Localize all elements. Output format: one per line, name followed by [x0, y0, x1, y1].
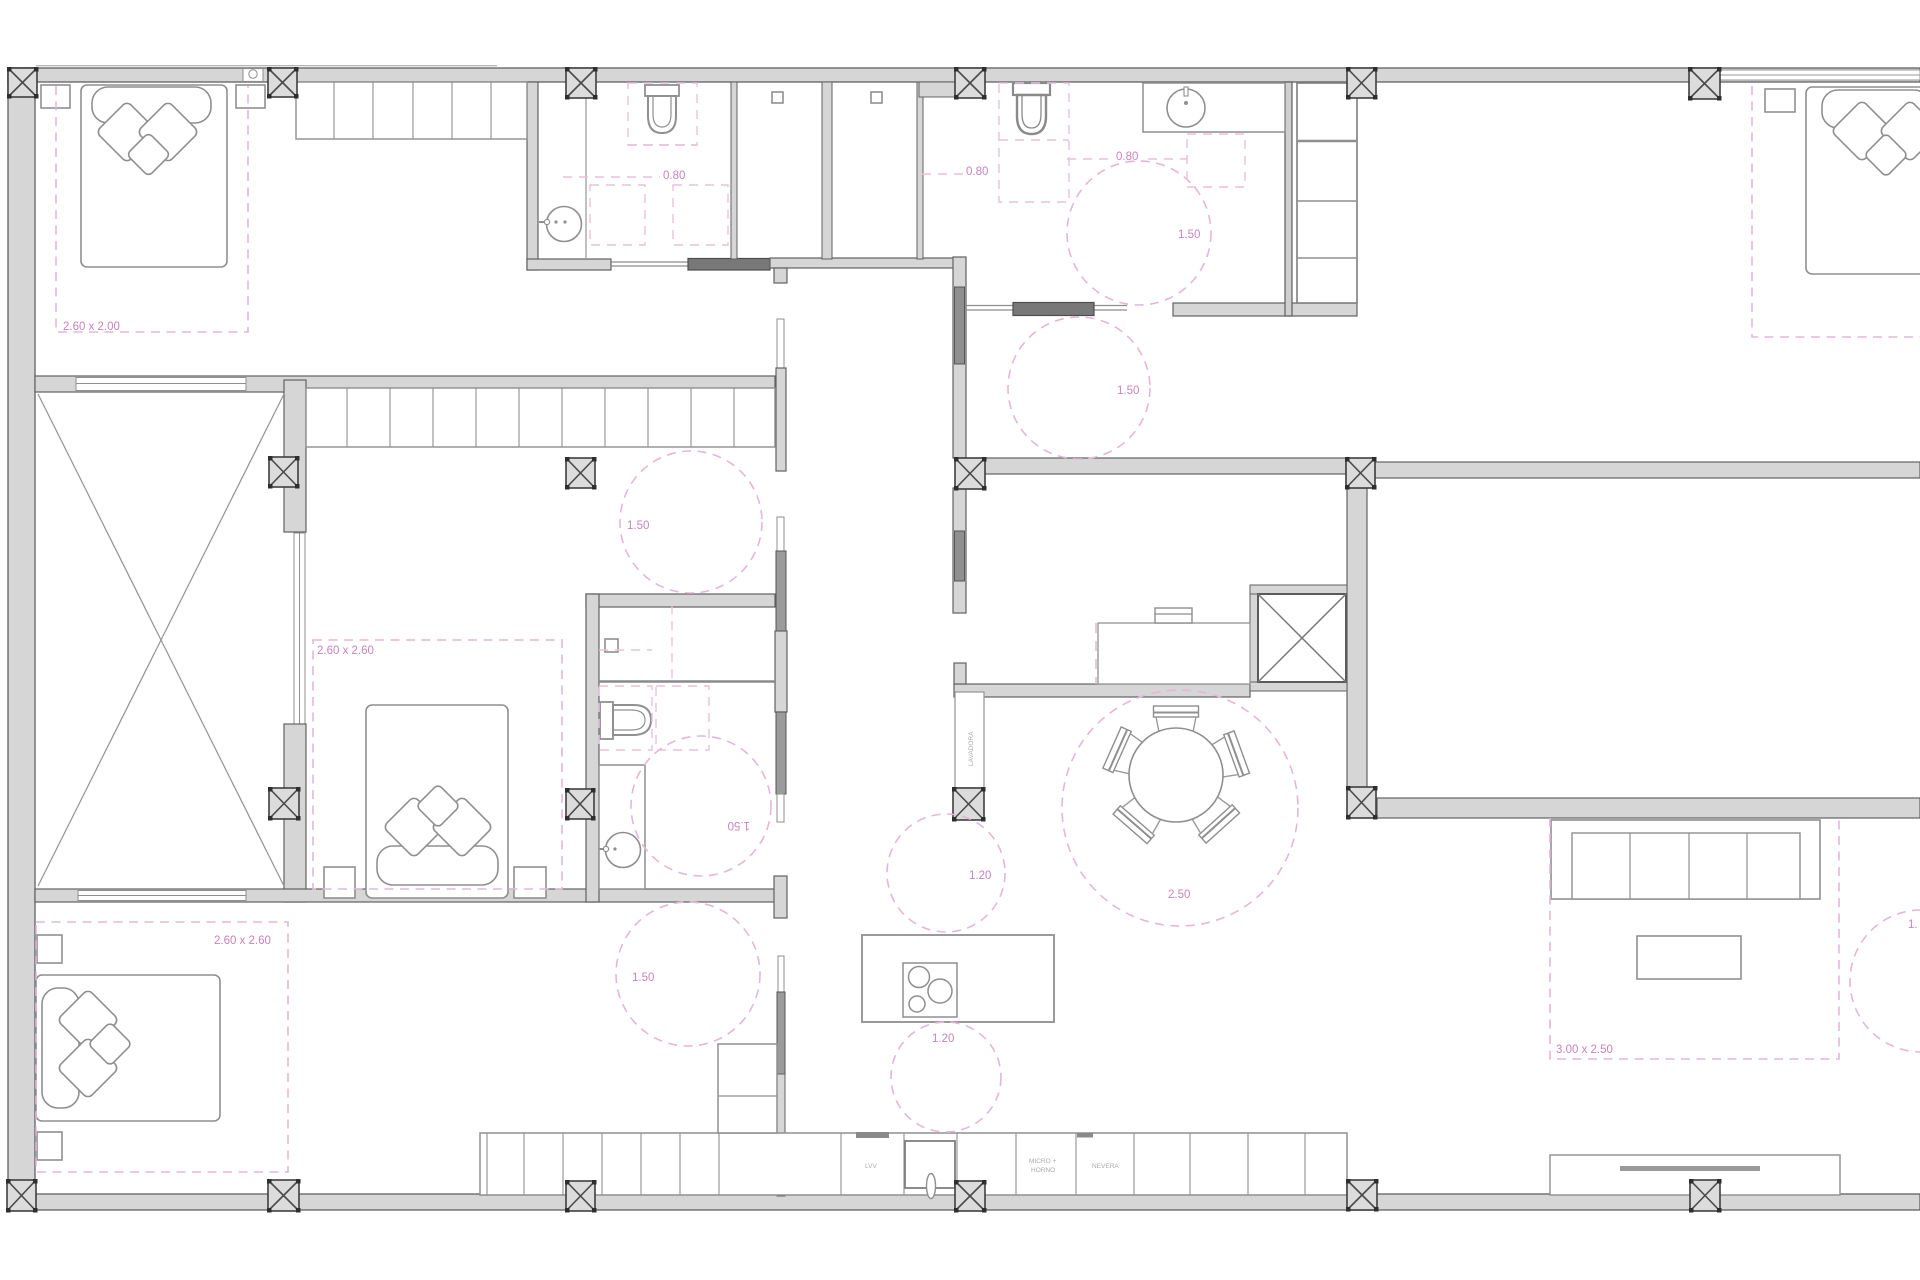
svg-text:HORNO: HORNO [1031, 1167, 1055, 1174]
svg-text:0.80: 0.80 [1116, 151, 1138, 163]
svg-text:1.50: 1.50 [632, 972, 654, 984]
svg-text:2.60 x 2.00: 2.60 x 2.00 [63, 321, 120, 333]
svg-text:2.60 x 2.60: 2.60 x 2.60 [214, 935, 271, 947]
svg-text:NEVERA: NEVERA [1092, 1163, 1119, 1170]
svg-text:1.50: 1.50 [1117, 385, 1139, 397]
svg-text:1.: 1. [1908, 919, 1918, 931]
svg-text:1.20: 1.20 [932, 1033, 954, 1045]
svg-text:LVV: LVV [865, 1163, 877, 1170]
svg-text:LAVADORA: LAVADORA [968, 731, 975, 766]
svg-text:1.50: 1.50 [627, 520, 649, 532]
svg-text:2.60 x 2.60: 2.60 x 2.60 [317, 645, 374, 657]
svg-text:0.80: 0.80 [966, 166, 988, 178]
svg-text:0.80: 0.80 [663, 170, 685, 182]
svg-text:MICRO +: MICRO + [1029, 1158, 1056, 1165]
svg-text:1.20: 1.20 [969, 870, 991, 882]
svg-text:3.00 x 2.50: 3.00 x 2.50 [1556, 1044, 1613, 1056]
svg-text:1.50: 1.50 [728, 819, 750, 831]
svg-text:1.50: 1.50 [1178, 229, 1200, 241]
svg-text:2.50: 2.50 [1168, 889, 1190, 901]
